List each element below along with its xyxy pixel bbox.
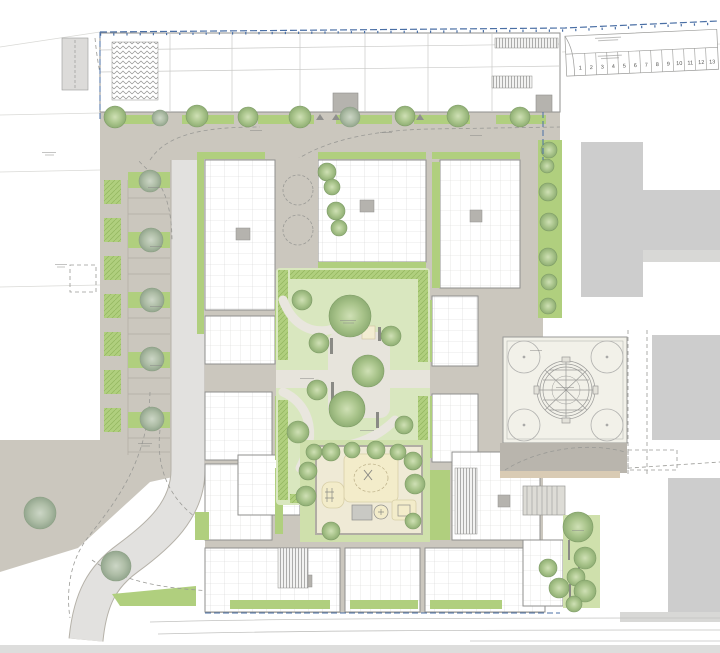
tree [289, 106, 311, 128]
tree [381, 326, 401, 346]
tree [322, 522, 340, 540]
tree [327, 202, 345, 220]
tree [329, 295, 371, 337]
stall-number: 11 [687, 60, 693, 66]
south-road-verge [112, 586, 196, 606]
building-northeast [440, 160, 520, 288]
tree [104, 106, 126, 128]
boundary-north [100, 21, 718, 32]
tree [139, 228, 163, 252]
building-west-3 [205, 392, 272, 460]
tree [322, 443, 340, 461]
bike-rack-south [278, 548, 308, 588]
north-entry-court [277, 158, 318, 268]
tree [318, 163, 336, 181]
sandbox [352, 505, 372, 520]
stall-number: 10 [676, 61, 682, 67]
stall-number: 5 [623, 63, 626, 69]
tree [447, 105, 469, 127]
tree [292, 290, 312, 310]
tree [390, 444, 406, 460]
tree [510, 107, 530, 127]
tree [540, 298, 556, 314]
tree [152, 110, 168, 126]
tree [539, 183, 557, 201]
stall-number: 3 [601, 64, 604, 70]
tree [307, 380, 327, 400]
tree [539, 559, 557, 577]
tree [540, 213, 558, 231]
stall-number: 8 [656, 62, 659, 68]
stall-number: 2 [590, 65, 593, 71]
tree [331, 220, 347, 236]
climbing-area [322, 482, 344, 508]
context-building-1-arm [643, 190, 720, 250]
site-plan-drawing: 1 2 3 4 5 6 7 8 9 10 11 12 13 [0, 0, 720, 653]
tree [140, 407, 164, 431]
tree [352, 355, 384, 387]
tree [329, 391, 365, 427]
context-building-2 [652, 335, 720, 440]
stall-number: 9 [667, 61, 670, 67]
tree [238, 107, 258, 127]
tree [549, 578, 569, 598]
tree [24, 497, 56, 529]
tree [140, 288, 164, 312]
tree [299, 462, 317, 480]
stall-number: 6 [634, 63, 637, 69]
bottom-band [0, 645, 720, 653]
tree [186, 105, 208, 127]
parking-row: 1 2 3 4 5 6 7 8 9 10 11 12 13 [565, 29, 719, 76]
site-plan-canvas: 1 2 3 4 5 6 7 8 9 10 11 12 13 [0, 0, 720, 653]
tree [287, 421, 309, 443]
building-east-1 [432, 296, 478, 366]
stall-number: 4 [612, 64, 615, 70]
north-building [62, 33, 560, 112]
bike-rack-row-ne1 [495, 38, 558, 48]
tree [344, 442, 360, 458]
tree [296, 486, 316, 506]
tree [405, 474, 425, 494]
tree [404, 452, 422, 470]
context-strip-1 [643, 250, 720, 262]
context-building-1 [581, 142, 643, 297]
bike-rack-southeast [455, 468, 477, 534]
bike-rack-row-ne2 [492, 76, 532, 88]
dome-plaza [500, 337, 627, 478]
tree [340, 107, 360, 127]
tree [139, 170, 161, 192]
tree [395, 416, 413, 434]
tree [540, 159, 554, 173]
amphitheater-stairs [523, 486, 565, 515]
tree [367, 441, 385, 459]
sand-strip [500, 471, 620, 478]
tree [563, 512, 593, 542]
tree [140, 347, 164, 371]
stall-number: 13 [709, 59, 715, 65]
tree [541, 274, 557, 290]
south-plaza [500, 443, 627, 473]
stair-core-2 [536, 95, 552, 112]
bike-rack-hatch-nw [112, 42, 158, 100]
tree [324, 179, 340, 195]
tree [539, 248, 557, 266]
tree [574, 547, 596, 569]
tree [566, 596, 582, 612]
stall-number: 12 [698, 60, 704, 66]
tree [101, 551, 131, 581]
tree [306, 444, 322, 460]
tree [405, 513, 421, 529]
entry-court-surface [277, 158, 318, 268]
stall-number: 7 [645, 62, 648, 68]
context-building-3 [668, 478, 720, 612]
tree [395, 106, 415, 126]
building-west-2 [205, 316, 275, 364]
context-strip-2 [620, 612, 720, 622]
tree [309, 333, 329, 353]
stall-number: 1 [579, 65, 582, 71]
